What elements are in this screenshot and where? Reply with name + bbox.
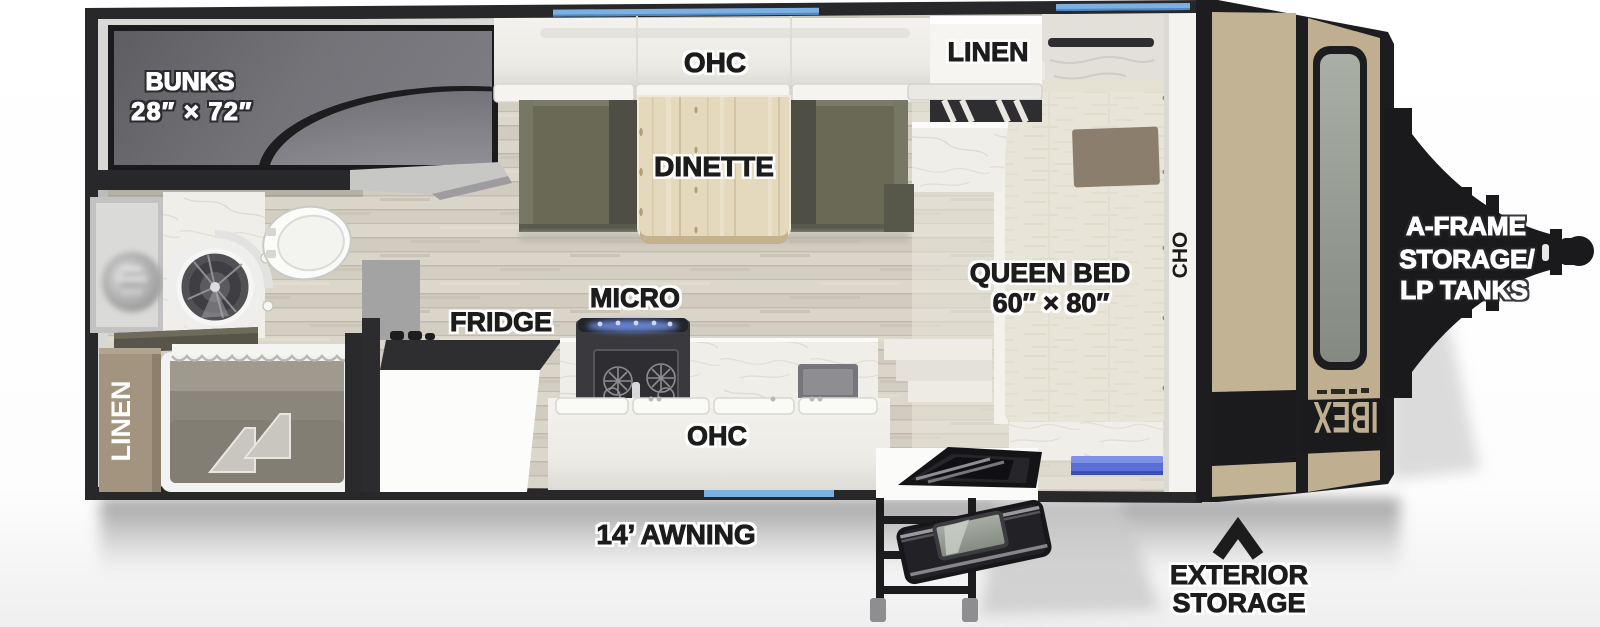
svg-text:14’ AWNING: 14’ AWNING bbox=[596, 519, 755, 550]
svg-text:QUEEN BED: QUEEN BED bbox=[970, 258, 1131, 288]
svg-text:60″ × 80″: 60″ × 80″ bbox=[993, 288, 1110, 318]
svg-text:LP TANKS: LP TANKS bbox=[1400, 275, 1528, 305]
svg-text:A-FRAME: A-FRAME bbox=[1406, 211, 1526, 241]
svg-text:OHC: OHC bbox=[687, 421, 747, 451]
svg-text:OHC: OHC bbox=[684, 47, 746, 78]
svg-text:CHO: CHO bbox=[1169, 232, 1192, 279]
svg-text:BUNKS: BUNKS bbox=[146, 68, 235, 96]
svg-text:IBEX: IBEX bbox=[1313, 392, 1378, 441]
svg-text:LINEN: LINEN bbox=[106, 381, 136, 462]
svg-text:FRIDGE: FRIDGE bbox=[450, 307, 552, 337]
svg-text:28″ × 72″: 28″ × 72″ bbox=[131, 98, 253, 126]
svg-text:DINETTE: DINETTE bbox=[654, 151, 774, 182]
svg-text:STORAGE: STORAGE bbox=[1172, 588, 1305, 618]
svg-text:MICRO: MICRO bbox=[590, 283, 680, 313]
svg-text:LINEN: LINEN bbox=[948, 37, 1029, 67]
svg-text:EXTERIOR: EXTERIOR bbox=[1170, 560, 1308, 590]
svg-text:STORAGE/: STORAGE/ bbox=[1399, 244, 1534, 274]
